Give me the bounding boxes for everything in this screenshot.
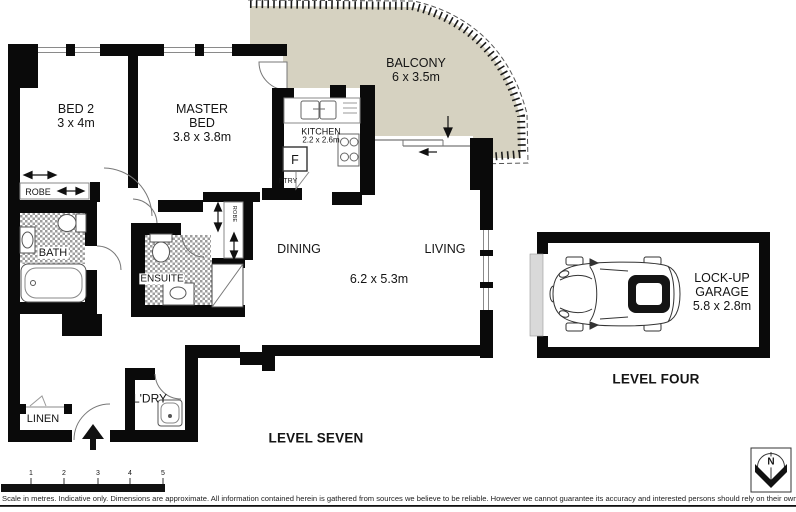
room-label-dining: DINING xyxy=(277,242,321,256)
scale-tick-5: 5 xyxy=(161,470,165,478)
north-label: N xyxy=(766,456,775,467)
room-label-ensuite: ENSUITE xyxy=(139,273,184,284)
robe-master-label: ROBE xyxy=(231,206,237,222)
living-dining-dims: 6.2 x 5.3m xyxy=(350,272,408,286)
car-icon xyxy=(550,257,680,331)
linen-shelf xyxy=(18,396,72,414)
toilet-tank-icon xyxy=(150,234,172,242)
disclaimer-text: Scale in metres. Indicative only. Dimens… xyxy=(2,494,794,503)
garage-door xyxy=(530,254,543,336)
basin-icon xyxy=(170,287,186,299)
room-label-bath: BATH xyxy=(38,247,69,259)
bath-door-arc xyxy=(97,246,121,270)
scale-tick-4: 4 xyxy=(128,470,132,478)
room-label-linen: LINEN xyxy=(27,413,59,425)
toilet-tank-icon xyxy=(76,214,86,232)
room-label-bed2: BED 2 3 x 4m xyxy=(57,102,95,130)
fridge-label: F xyxy=(291,153,299,167)
north-compass-icon xyxy=(751,448,791,492)
toilet-bowl-icon xyxy=(153,242,170,262)
room-label-kitchen: KITCHEN 2.2 x 2.6m xyxy=(301,126,341,145)
sink-icon xyxy=(320,101,336,119)
level-seven-label: LEVEL SEVEN xyxy=(269,430,364,445)
room-label-laundry: L'DRY xyxy=(133,392,167,405)
bottom-rule xyxy=(0,505,796,507)
toilet-bowl-icon xyxy=(58,215,76,232)
room-label-master: MASTER BED 3.8 x 3.8m xyxy=(164,102,240,144)
floor-plan-page: BED 2 3 x 4m MASTER BED 3.8 x 3.8m BALCO… xyxy=(0,0,796,512)
basin-icon xyxy=(22,232,33,248)
scale-tick-3: 3 xyxy=(96,470,100,478)
room-label-balcony: BALCONY 6 x 3.5m xyxy=(386,56,446,84)
room-label-garage: LOCK-UP GARAGE 5.8 x 2.8m xyxy=(682,271,762,313)
entry-arrow-icon xyxy=(82,424,104,450)
balcony-door-arc xyxy=(259,62,287,90)
scale-bar xyxy=(1,478,165,492)
level-four-label: LEVEL FOUR xyxy=(612,371,699,386)
sink-icon xyxy=(301,101,319,119)
scale-tick-2: 2 xyxy=(62,470,66,478)
pantry-label: PTRY xyxy=(279,178,298,186)
room-label-living: LIVING xyxy=(425,242,466,256)
ensuite-tiles-2 xyxy=(196,258,212,305)
master-door-arc xyxy=(133,199,157,223)
scale-tick-1: 1 xyxy=(29,470,33,478)
pantry-door xyxy=(296,172,309,189)
robe-bed2-label: ROBE xyxy=(24,187,52,197)
bed2-door-arc xyxy=(104,168,152,216)
